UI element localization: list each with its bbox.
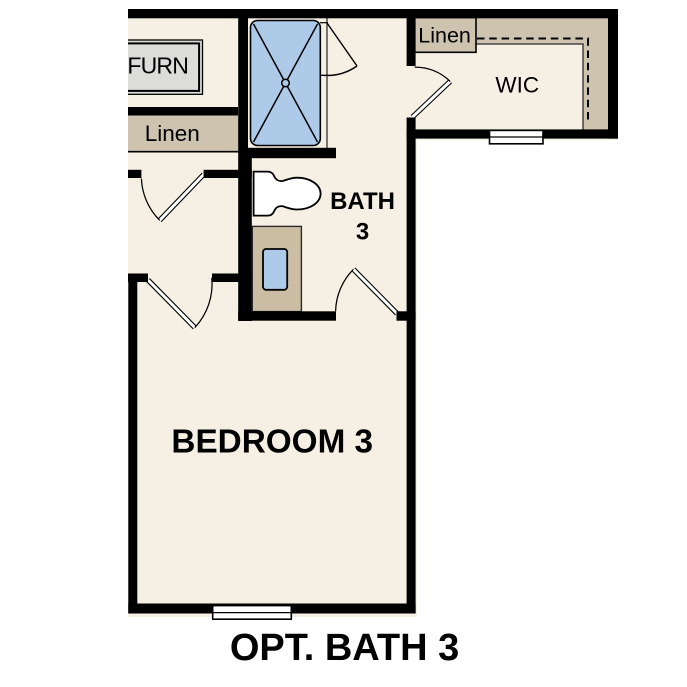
svg-text:WIC: WIC — [495, 72, 539, 97]
svg-text:BEDROOM 3: BEDROOM 3 — [171, 423, 373, 460]
svg-text:BATH: BATH — [330, 188, 395, 215]
svg-text:Linen: Linen — [145, 121, 200, 146]
svg-text:OPT. BATH 3: OPT. BATH 3 — [230, 627, 459, 669]
svg-text:FURN: FURN — [127, 53, 188, 79]
svg-text:Linen: Linen — [418, 23, 471, 47]
svg-text:3: 3 — [356, 218, 369, 245]
